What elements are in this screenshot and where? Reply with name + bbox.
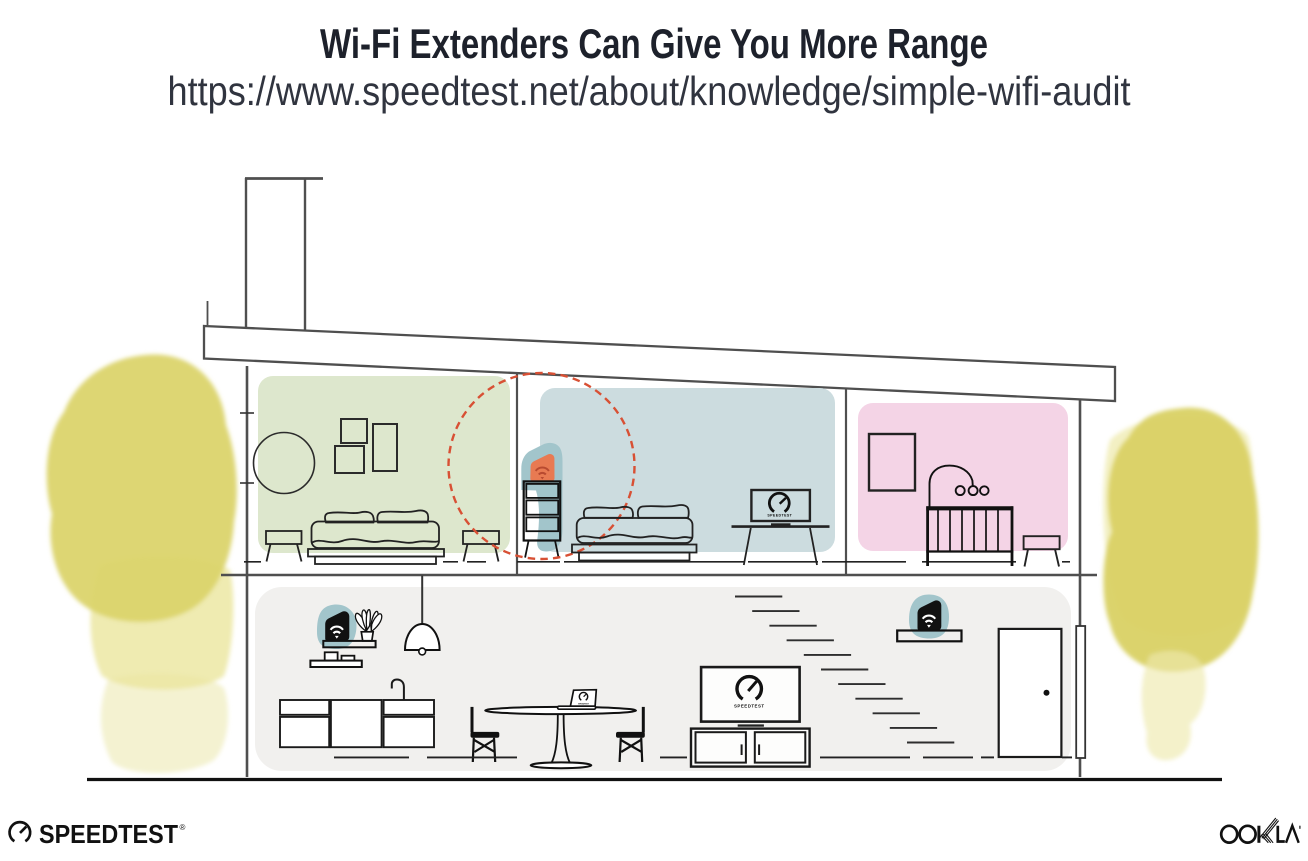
svg-text:SPEEDTEST: SPEEDTEST (734, 703, 765, 708)
svg-text:SPEEDTEST: SPEEDTEST (767, 514, 792, 518)
svg-text:Wi-Fi Extenders Can Give You M: Wi-Fi Extenders Can Give You More Range (320, 20, 988, 67)
svg-text:SPEEDTEST: SPEEDTEST (578, 704, 590, 706)
svg-text:®: ® (180, 823, 186, 832)
svg-text:SPEEDTEST: SPEEDTEST (39, 821, 178, 849)
svg-text:https://www.speedtest.net/abou: https://www.speedtest.net/about/knowledg… (168, 68, 1132, 114)
